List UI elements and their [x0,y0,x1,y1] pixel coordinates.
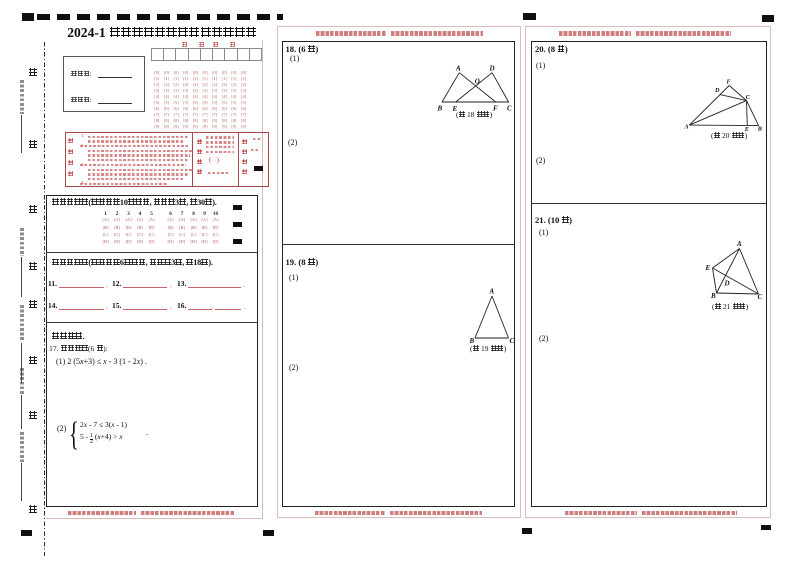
svg-text:A: A [736,240,742,248]
svg-text:B: B [757,126,762,133]
svg-text:A: A [489,288,495,296]
svg-text:C: C [510,337,515,345]
svg-text:B: B [710,292,716,300]
svg-text:C: C [746,94,751,101]
svg-text:C: C [758,293,763,300]
svg-text:A: A [684,124,689,131]
svg-text:C: C [507,105,512,113]
svg-text:F: F [727,79,732,86]
svg-text:O: O [475,78,480,86]
svg-text:F: F [493,105,498,113]
svg-text:A: A [455,65,461,73]
svg-text:D: D [714,87,720,94]
svg-text:D: D [489,65,495,73]
svg-text:B: B [437,105,443,113]
svg-text:D: D [724,280,730,288]
svg-text:E: E [705,264,711,272]
